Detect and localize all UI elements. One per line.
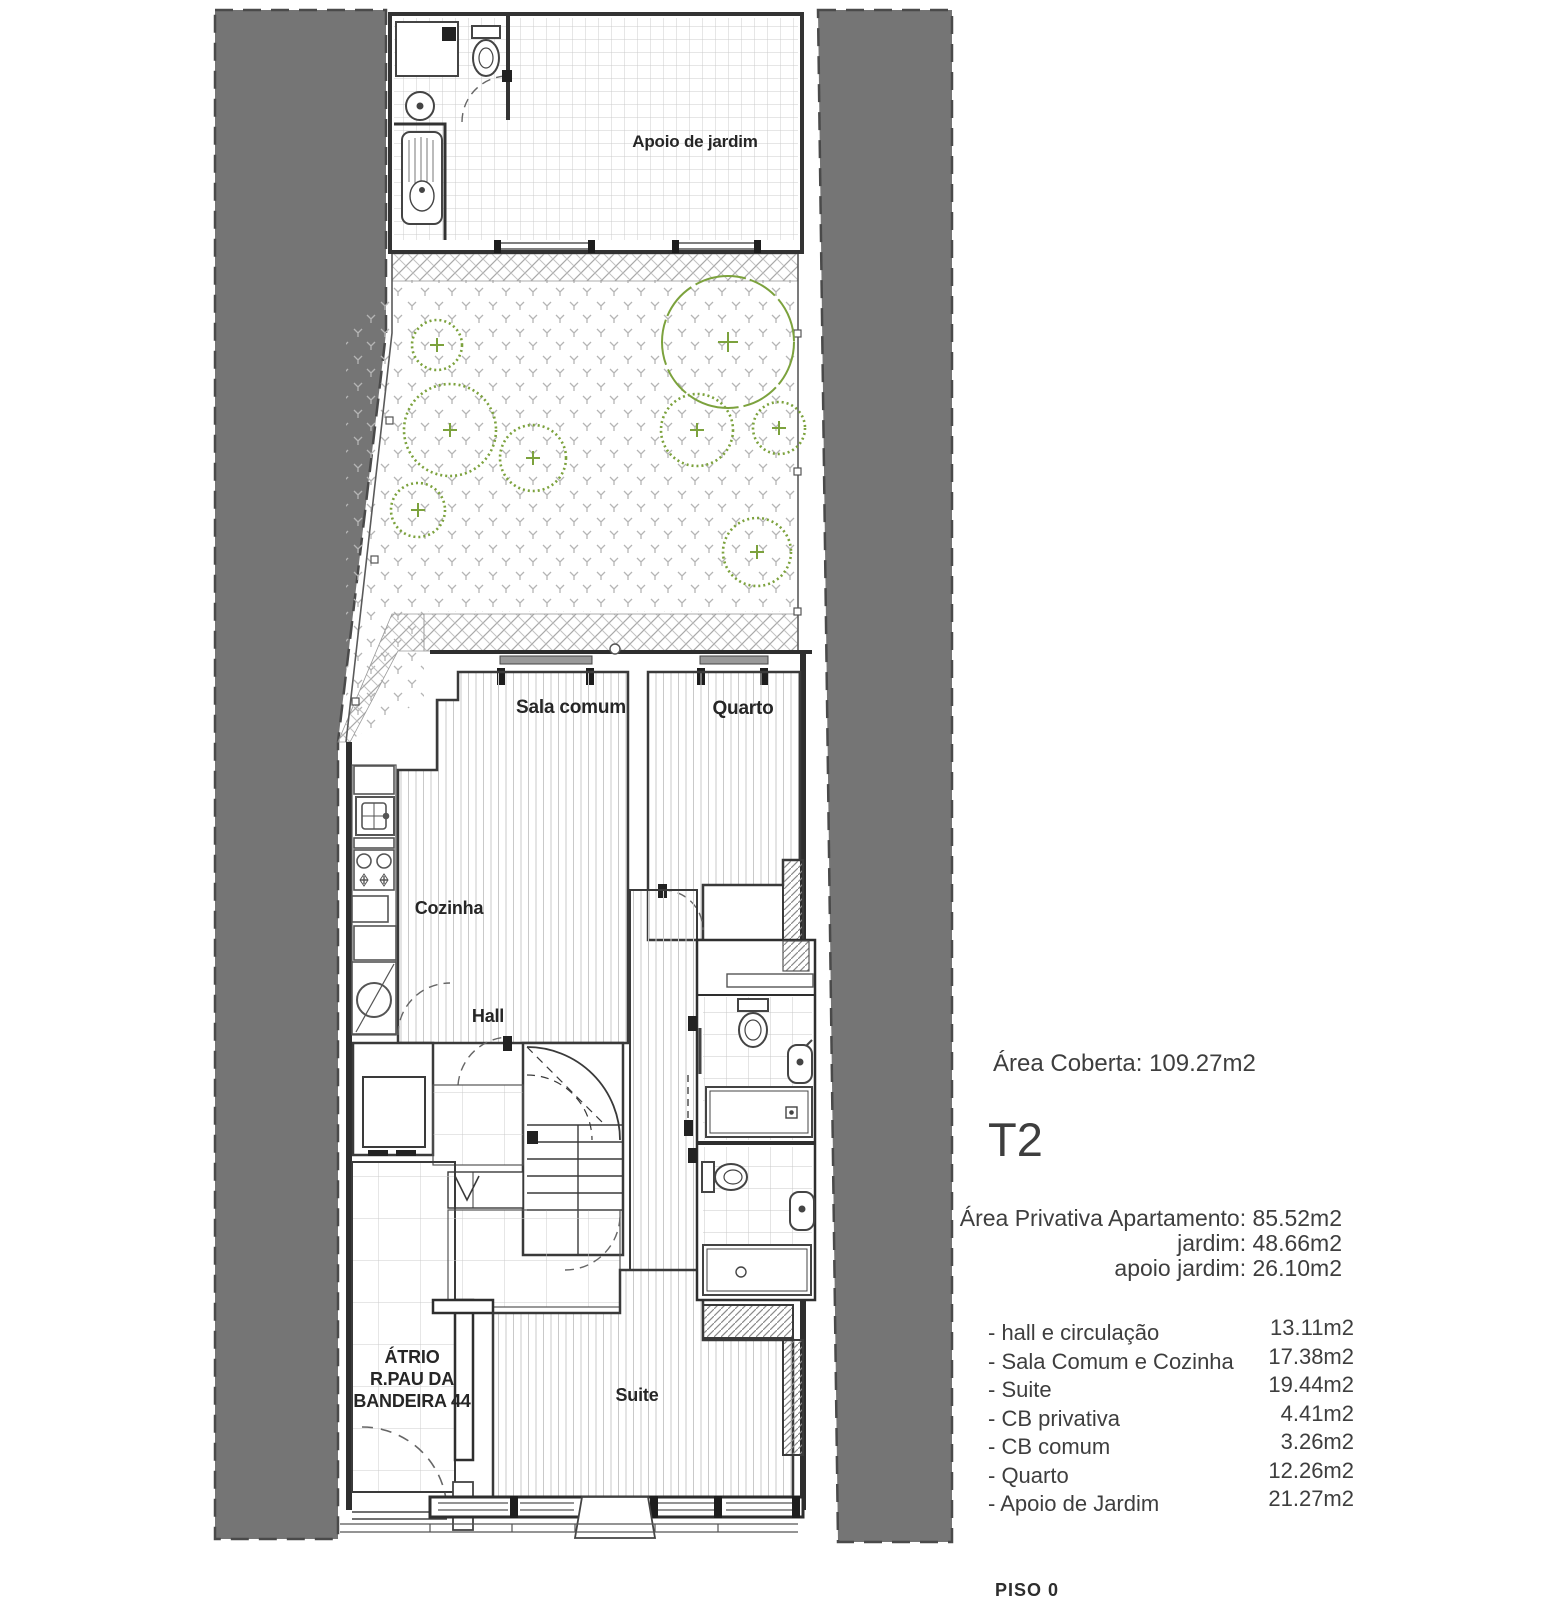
shower-drain bbox=[442, 27, 456, 41]
kitchen-hob bbox=[354, 850, 394, 890]
room-areas-list: - hall e circulação 13.11m2 - Sala Comum… bbox=[988, 1320, 1354, 1520]
covered-area-text: Área Coberta: 109.27m2 bbox=[993, 1050, 1256, 1078]
sala-cozinha-room bbox=[398, 672, 628, 1043]
room-area: 13.11m2 bbox=[1270, 1315, 1354, 1341]
corridor-floor bbox=[630, 890, 697, 1270]
room-name: - Quarto bbox=[988, 1463, 1069, 1489]
room-area: 3.26m2 bbox=[1281, 1429, 1354, 1455]
room-area: 17.38m2 bbox=[1268, 1344, 1354, 1370]
label-cozinha: Cozinha bbox=[415, 898, 484, 919]
room-name: - Sala Comum e Cozinha bbox=[988, 1349, 1234, 1375]
label-quarto: Quarto bbox=[712, 698, 773, 720]
lower-flight bbox=[448, 1172, 523, 1208]
floor-plan-page: Apoio de jardim Sala comum Quarto Cozinh… bbox=[0, 0, 1556, 1609]
room-name: - CB comum bbox=[988, 1434, 1110, 1460]
cb-privativa-sink bbox=[790, 1192, 814, 1230]
kitchen-sink bbox=[356, 797, 394, 835]
bathrooms bbox=[684, 940, 815, 1300]
floor-label: PISO 0 bbox=[995, 1580, 1059, 1601]
label-sala-comum: Sala comum bbox=[516, 697, 626, 719]
laundry-corner bbox=[352, 962, 396, 1034]
label-hall: Hall bbox=[472, 1006, 504, 1027]
facade-marker bbox=[610, 644, 620, 654]
typology-title: T2 bbox=[988, 1112, 1043, 1167]
kitchen-cabinet bbox=[352, 896, 388, 922]
bath-top-closet bbox=[783, 941, 809, 971]
cb-privativa-bathtub bbox=[703, 1245, 811, 1295]
label-suite: Suite bbox=[615, 1385, 658, 1406]
facade-sill-band bbox=[340, 1524, 798, 1532]
room-area: 19.44m2 bbox=[1268, 1372, 1354, 1398]
shower-tray bbox=[396, 22, 458, 76]
suite-closet-niche bbox=[783, 1340, 803, 1455]
bath-door-leaf bbox=[502, 70, 512, 82]
bathtub bbox=[402, 132, 442, 224]
round-sink bbox=[406, 92, 434, 120]
cb-privativa-toilet bbox=[702, 1162, 747, 1192]
cb-comum-bathtub bbox=[706, 1087, 812, 1137]
room-name: - hall e circulação bbox=[988, 1320, 1159, 1346]
cb-comum-toilet bbox=[738, 999, 768, 1047]
bath-shelf bbox=[727, 974, 813, 987]
elevator bbox=[353, 1043, 433, 1156]
label-atrio: ÁTRIO R.PAU DA BANDEIRA 44 bbox=[353, 1346, 470, 1412]
private-area-line: Área Privativa Apartamento: 85.52m2 bbox=[860, 1206, 1342, 1230]
room-area: 4.41m2 bbox=[1281, 1401, 1354, 1427]
room-area-row: - Apoio de Jardim 21.27m2 bbox=[988, 1491, 1354, 1520]
label-apoio-de-jardim: Apoio de jardim bbox=[632, 132, 757, 152]
kitchen-tall-unit bbox=[354, 926, 396, 960]
suite-top-wall bbox=[433, 1300, 493, 1313]
kitchen-fixtures bbox=[352, 765, 396, 1035]
street-facade bbox=[340, 1496, 803, 1538]
room-area: 21.27m2 bbox=[1268, 1486, 1354, 1512]
private-areas-block: Área Privativa Apartamento: 85.52m2 jard… bbox=[860, 1206, 1342, 1281]
room-name: - Apoio de Jardim bbox=[988, 1491, 1159, 1517]
room-name: - Suite bbox=[988, 1377, 1052, 1403]
private-area-line: apoio jardim: 26.10m2 bbox=[860, 1256, 1342, 1280]
room-name: - CB privativa bbox=[988, 1406, 1120, 1432]
toilet bbox=[472, 26, 500, 76]
cb-comum-sink bbox=[788, 1040, 812, 1083]
suite-wardrobe bbox=[703, 1305, 793, 1338]
private-area-line: jardim: 48.66m2 bbox=[860, 1231, 1342, 1255]
kitchen-upper-cabinet bbox=[354, 766, 394, 794]
neighbor-building-right bbox=[818, 10, 952, 1542]
garden bbox=[338, 254, 805, 742]
room-area: 12.26m2 bbox=[1268, 1458, 1354, 1484]
